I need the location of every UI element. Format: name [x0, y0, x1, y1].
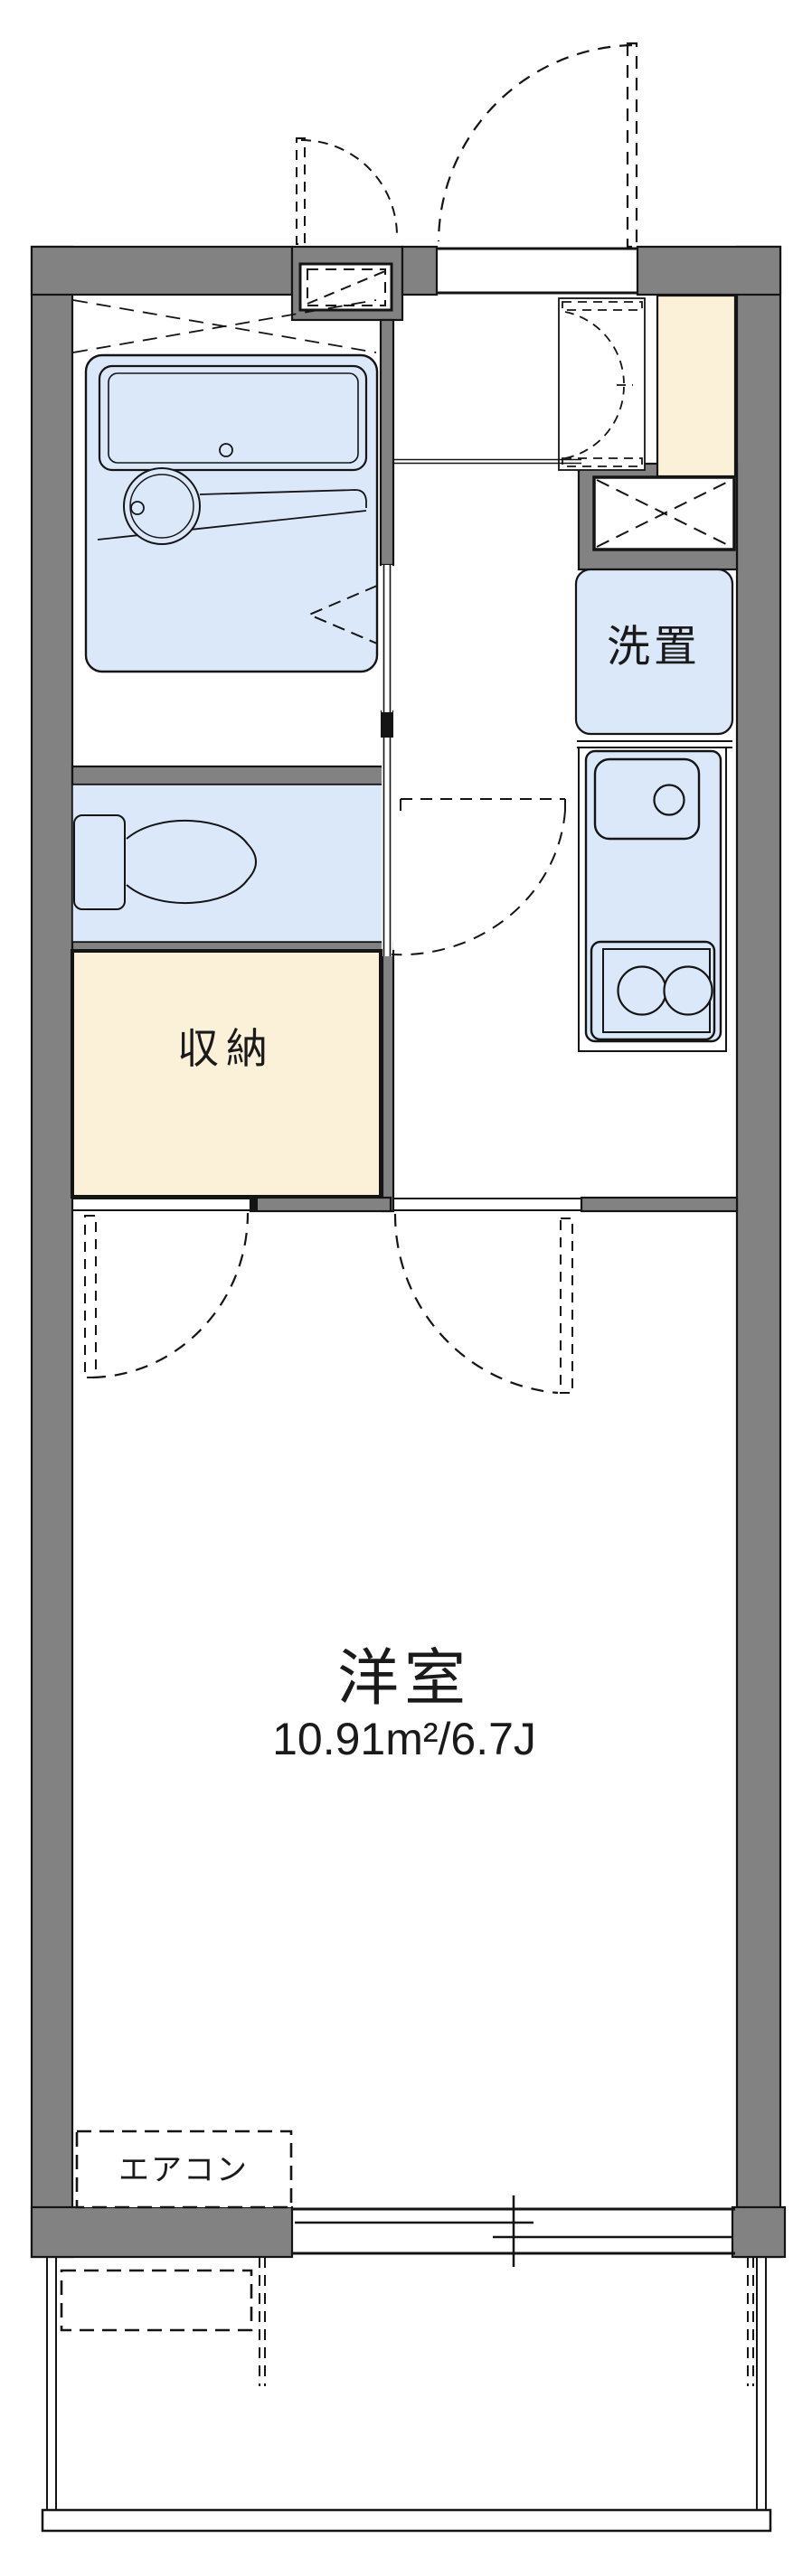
balcony-partition-left	[260, 2257, 265, 2386]
aircon-box: エアコン	[77, 2131, 291, 2207]
bathtub-icon	[99, 366, 366, 470]
wall-room-top-b	[581, 1198, 737, 1211]
kitchen	[577, 741, 732, 1051]
sliding-window-icon	[292, 2195, 735, 2267]
meter-box	[297, 138, 397, 310]
pipe-space-icon	[594, 477, 734, 550]
main-room-area: 10.91m²/6.7J	[272, 1714, 536, 1764]
wall-bottom-right	[732, 2207, 785, 2257]
main-room-label: 洋室	[337, 1644, 471, 1713]
wall-top-right	[637, 247, 780, 295]
washing-machine-space: 洗置	[576, 569, 732, 734]
wall-right	[737, 247, 780, 2257]
toilet-door-icon	[392, 799, 565, 954]
storage-label: 収納	[177, 1025, 275, 1072]
kitchen-sink-icon	[595, 759, 699, 839]
bathroom	[73, 300, 392, 712]
floorplan: 洗置	[0, 0, 812, 2576]
wall-bathroom-right	[381, 320, 393, 565]
balcony-partition-right	[748, 2257, 753, 2386]
wash-basin-icon	[124, 468, 200, 544]
entrance	[437, 43, 637, 293]
main-room: 洋室 10.91m²/6.7J エアコン	[77, 1644, 536, 2207]
room-door-right	[393, 1199, 581, 1393]
shoe-cabinet	[559, 298, 645, 470]
laundry-label: 洗置	[607, 624, 701, 672]
wall-bottom-left	[32, 2207, 292, 2257]
tall-cabinet	[657, 296, 735, 476]
wall-room-top-a	[250, 1198, 391, 1211]
balcony-equipment-box	[61, 2270, 251, 2330]
storage-room: 収納	[72, 951, 381, 1197]
genkan-step-line	[393, 460, 581, 464]
balcony	[42, 2257, 770, 2531]
wall-top-left	[32, 247, 292, 295]
wall-storage-right	[382, 951, 393, 1211]
toilet-icon	[74, 815, 256, 909]
wall-stub-bath	[381, 710, 393, 738]
wall-left	[32, 247, 72, 2257]
stove-icon	[591, 942, 714, 1039]
bathroom-top-cross	[73, 300, 376, 353]
aircon-label: エアコン	[118, 2153, 249, 2187]
wall-top-pillar	[402, 247, 437, 295]
room-door-left	[72, 1199, 250, 1377]
meter-box-door-icon	[297, 138, 397, 244]
entrance-door-icon	[439, 43, 637, 247]
wall-bathroom-bottom	[72, 766, 384, 785]
wall-cap	[250, 1198, 258, 1211]
